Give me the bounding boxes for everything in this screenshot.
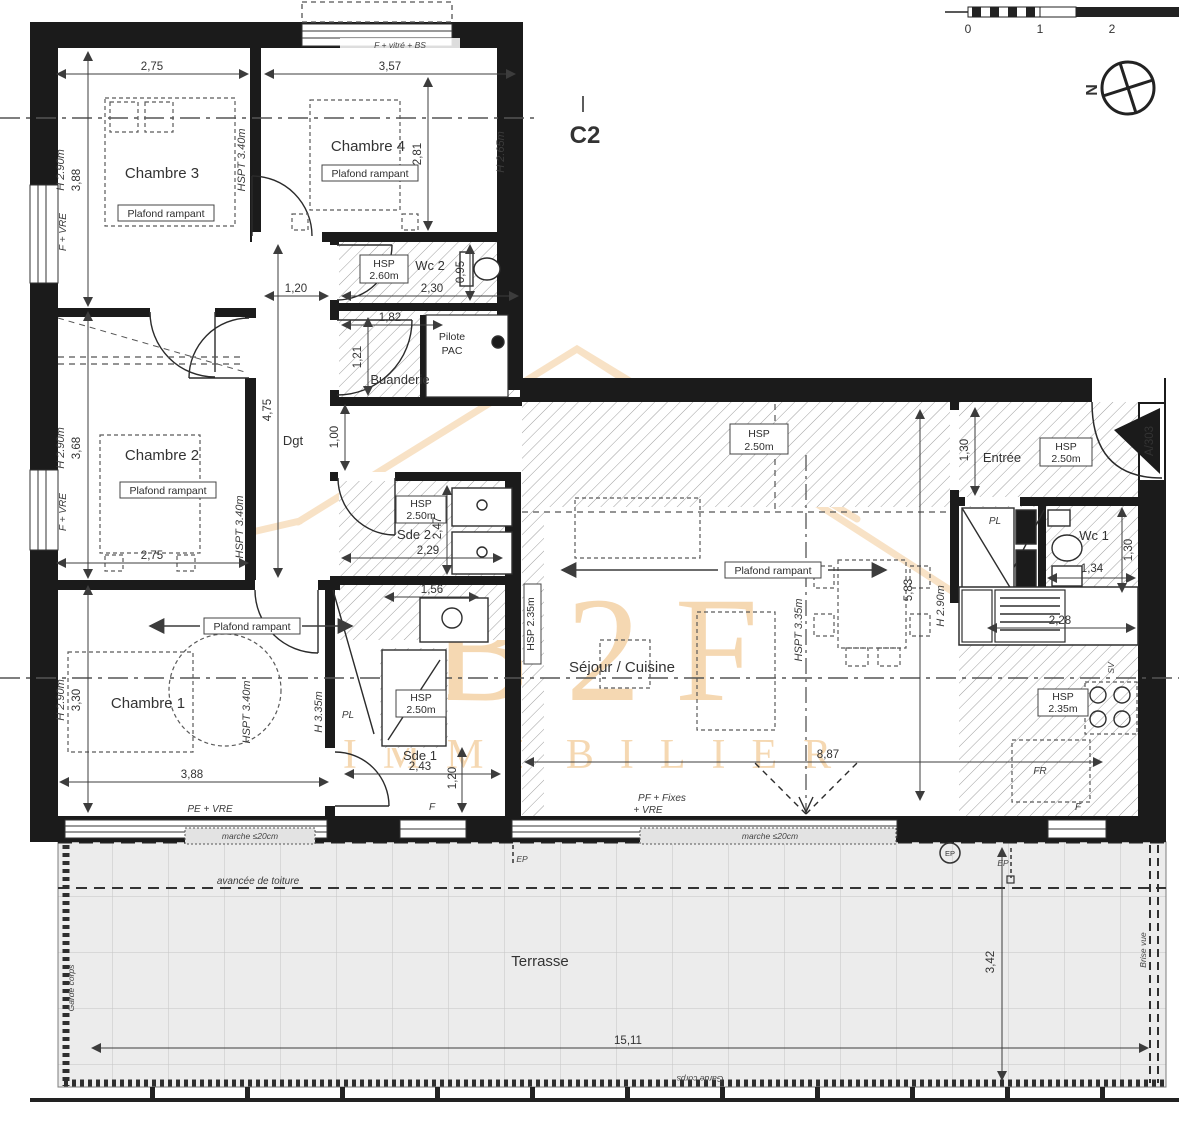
dim: 1,21 — [352, 346, 364, 368]
north-label: N — [1084, 84, 1101, 96]
room-name-dgt: Dgt — [283, 433, 304, 448]
floor-plan: B2F IMMOBILIER — [0, 0, 1179, 1123]
hsp-badge: 2.50m — [1051, 453, 1080, 465]
pac-label: Pilote — [439, 331, 465, 343]
bed-chambre4 — [310, 100, 400, 210]
hsp-badge: HSP — [373, 258, 395, 270]
room-name-chambre4: Chambre 4 — [331, 138, 405, 155]
floor-plan-svg: B2F IMMOBILIER — [0, 0, 1179, 1123]
turning-circle — [169, 634, 281, 746]
room-name-sejour: Séjour / Cuisine — [569, 659, 675, 676]
room-name-sde2: Sde 2 — [397, 527, 431, 542]
dim: 3,57 — [379, 61, 401, 73]
dim: 2,29 — [417, 545, 439, 557]
ceiling-badge-chambre3: Plafond rampant — [127, 208, 204, 220]
guardrail-label: Garde corps — [676, 1074, 724, 1084]
room-name-chambre1: Chambre 1 — [111, 695, 185, 712]
dim: 15,11 — [614, 1035, 642, 1047]
dim: 2,30 — [421, 283, 443, 295]
pac-label: PAC — [442, 345, 463, 357]
hsp-badge: HSP — [410, 498, 432, 510]
scale-tick-1: 1 — [1037, 22, 1044, 36]
door-ref-label: A/303 — [1144, 426, 1156, 456]
dim: 1,30 — [1123, 539, 1135, 561]
dim: 2,43 — [409, 761, 431, 773]
room-name-terrasse: Terrasse — [511, 953, 569, 970]
step-label: marche ≤20cm — [742, 831, 798, 841]
window-label: F — [429, 802, 436, 813]
dim: 1,20 — [285, 283, 307, 295]
screen-label: Brise vue — [1138, 932, 1148, 968]
scale-bar — [945, 7, 1179, 17]
ground-line — [30, 1098, 1179, 1102]
hspt-label: HSPT 3.35m — [793, 599, 805, 662]
hsp-badge: HSP — [1052, 691, 1074, 703]
bay-label: PE + VRE — [187, 804, 233, 815]
vent-label: SV — [1106, 661, 1116, 674]
skylight-outline — [302, 2, 452, 22]
closet-label: PL — [342, 710, 354, 721]
room-name-chambre3: Chambre 3 — [125, 165, 199, 182]
hsp-badge: 2.60m — [369, 270, 398, 282]
closet-label: PL — [989, 516, 1001, 527]
dim: 1,56 — [421, 584, 443, 596]
terrace — [30, 842, 1179, 1102]
hsp-badge: HSP — [1055, 441, 1077, 453]
room-name-wc2: Wc 2 — [415, 258, 445, 273]
hsp-badge: 2.50m — [744, 441, 773, 453]
hspt-label: HSPT 3.40m — [234, 496, 246, 559]
ceiling-badge-chambre2: Plafond rampant — [129, 485, 206, 497]
dim: 3,68 — [71, 437, 83, 459]
dim: 1,34 — [1081, 563, 1104, 575]
window-label: F + VRE — [58, 213, 69, 251]
step-label: marche ≤20cm — [222, 831, 278, 841]
height-label: H 3.35m — [313, 691, 325, 733]
dim: 2,75 — [141, 61, 163, 73]
height-label: H 2.90m — [55, 679, 67, 721]
bay-label: + VRE — [633, 805, 663, 816]
dining-table — [838, 560, 906, 648]
dim: 2,28 — [1049, 615, 1071, 627]
window-label: F + vitré + BS — [374, 40, 426, 50]
height-label: H 2.90m — [55, 149, 67, 191]
dim: 3,42 — [985, 951, 997, 973]
dim: 4,75 — [262, 399, 274, 421]
dim: 1,00 — [329, 426, 341, 448]
room-name-entree: Entrée — [983, 450, 1021, 465]
guardrail-label: Garde corps — [66, 964, 76, 1012]
dim: 5,83 — [903, 579, 915, 601]
drain-label: EP — [516, 854, 528, 864]
dim: 2,75 — [141, 550, 163, 562]
ceiling-badge-sejour: Plafond rampant — [734, 565, 811, 577]
hspt-label: HSPT 3.40m — [236, 129, 248, 192]
dim: 2,47 — [432, 517, 444, 539]
drain-label: EP — [945, 849, 955, 858]
roof-overhang-label: avancée de toiture — [217, 876, 300, 887]
height-label: H 2.90m — [55, 427, 67, 469]
dim: 1,20 — [447, 767, 459, 789]
scale-tick-2: 2 — [1109, 22, 1116, 36]
drain-label: EP — [997, 858, 1009, 868]
dim: 3,30 — [71, 689, 83, 711]
room-name-buanderie: Buanderie — [370, 372, 429, 387]
dim: 1,82 — [379, 312, 401, 324]
height-label: H 2.65m — [495, 131, 507, 173]
dim: 2,81 — [412, 143, 424, 165]
dim: 1,30 — [959, 439, 971, 461]
hsp-label: HSP 2.35m — [525, 597, 537, 651]
unit-label: C2 — [570, 122, 601, 149]
dim: 3,88 — [71, 169, 83, 191]
dim: 0,95 — [455, 261, 467, 283]
dim: 3,88 — [181, 769, 203, 781]
fridge-label: FR — [1033, 766, 1046, 777]
window-label: F + VRE — [58, 493, 69, 531]
ceiling-badge-chambre1: Plafond rampant — [213, 621, 290, 633]
hsp-badge: HSP — [748, 428, 770, 440]
dim: 8,87 — [817, 749, 839, 761]
bay-label: PF + Fixes — [638, 793, 686, 804]
north-arrow — [1102, 62, 1154, 114]
hsp-badge: 2.50m — [406, 704, 435, 716]
window-label: F — [1075, 802, 1082, 813]
hsp-badge: 2.35m — [1048, 703, 1077, 715]
scale-tick-0: 0 — [965, 22, 972, 36]
height-label: H 2.90m — [935, 585, 947, 627]
room-name-chambre2: Chambre 2 — [125, 447, 199, 464]
ceiling-badge-chambre4: Plafond rampant — [331, 168, 408, 180]
hsp-badge: HSP — [410, 692, 432, 704]
hspt-label: HSPT 3.40m — [241, 681, 253, 744]
room-name-wc1: Wc 1 — [1079, 528, 1109, 543]
